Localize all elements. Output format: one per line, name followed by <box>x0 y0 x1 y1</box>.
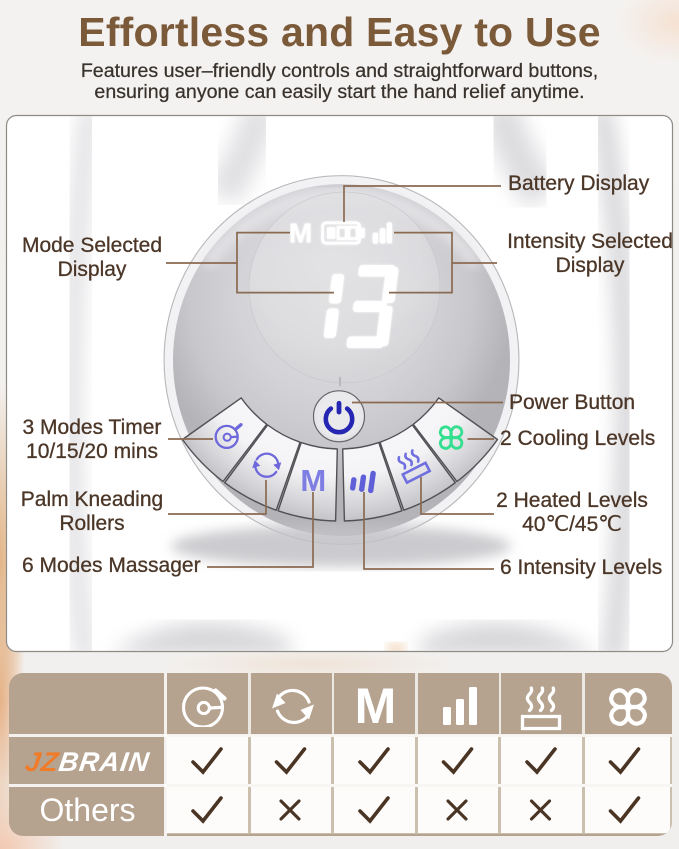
svg-text:M: M <box>289 218 312 249</box>
